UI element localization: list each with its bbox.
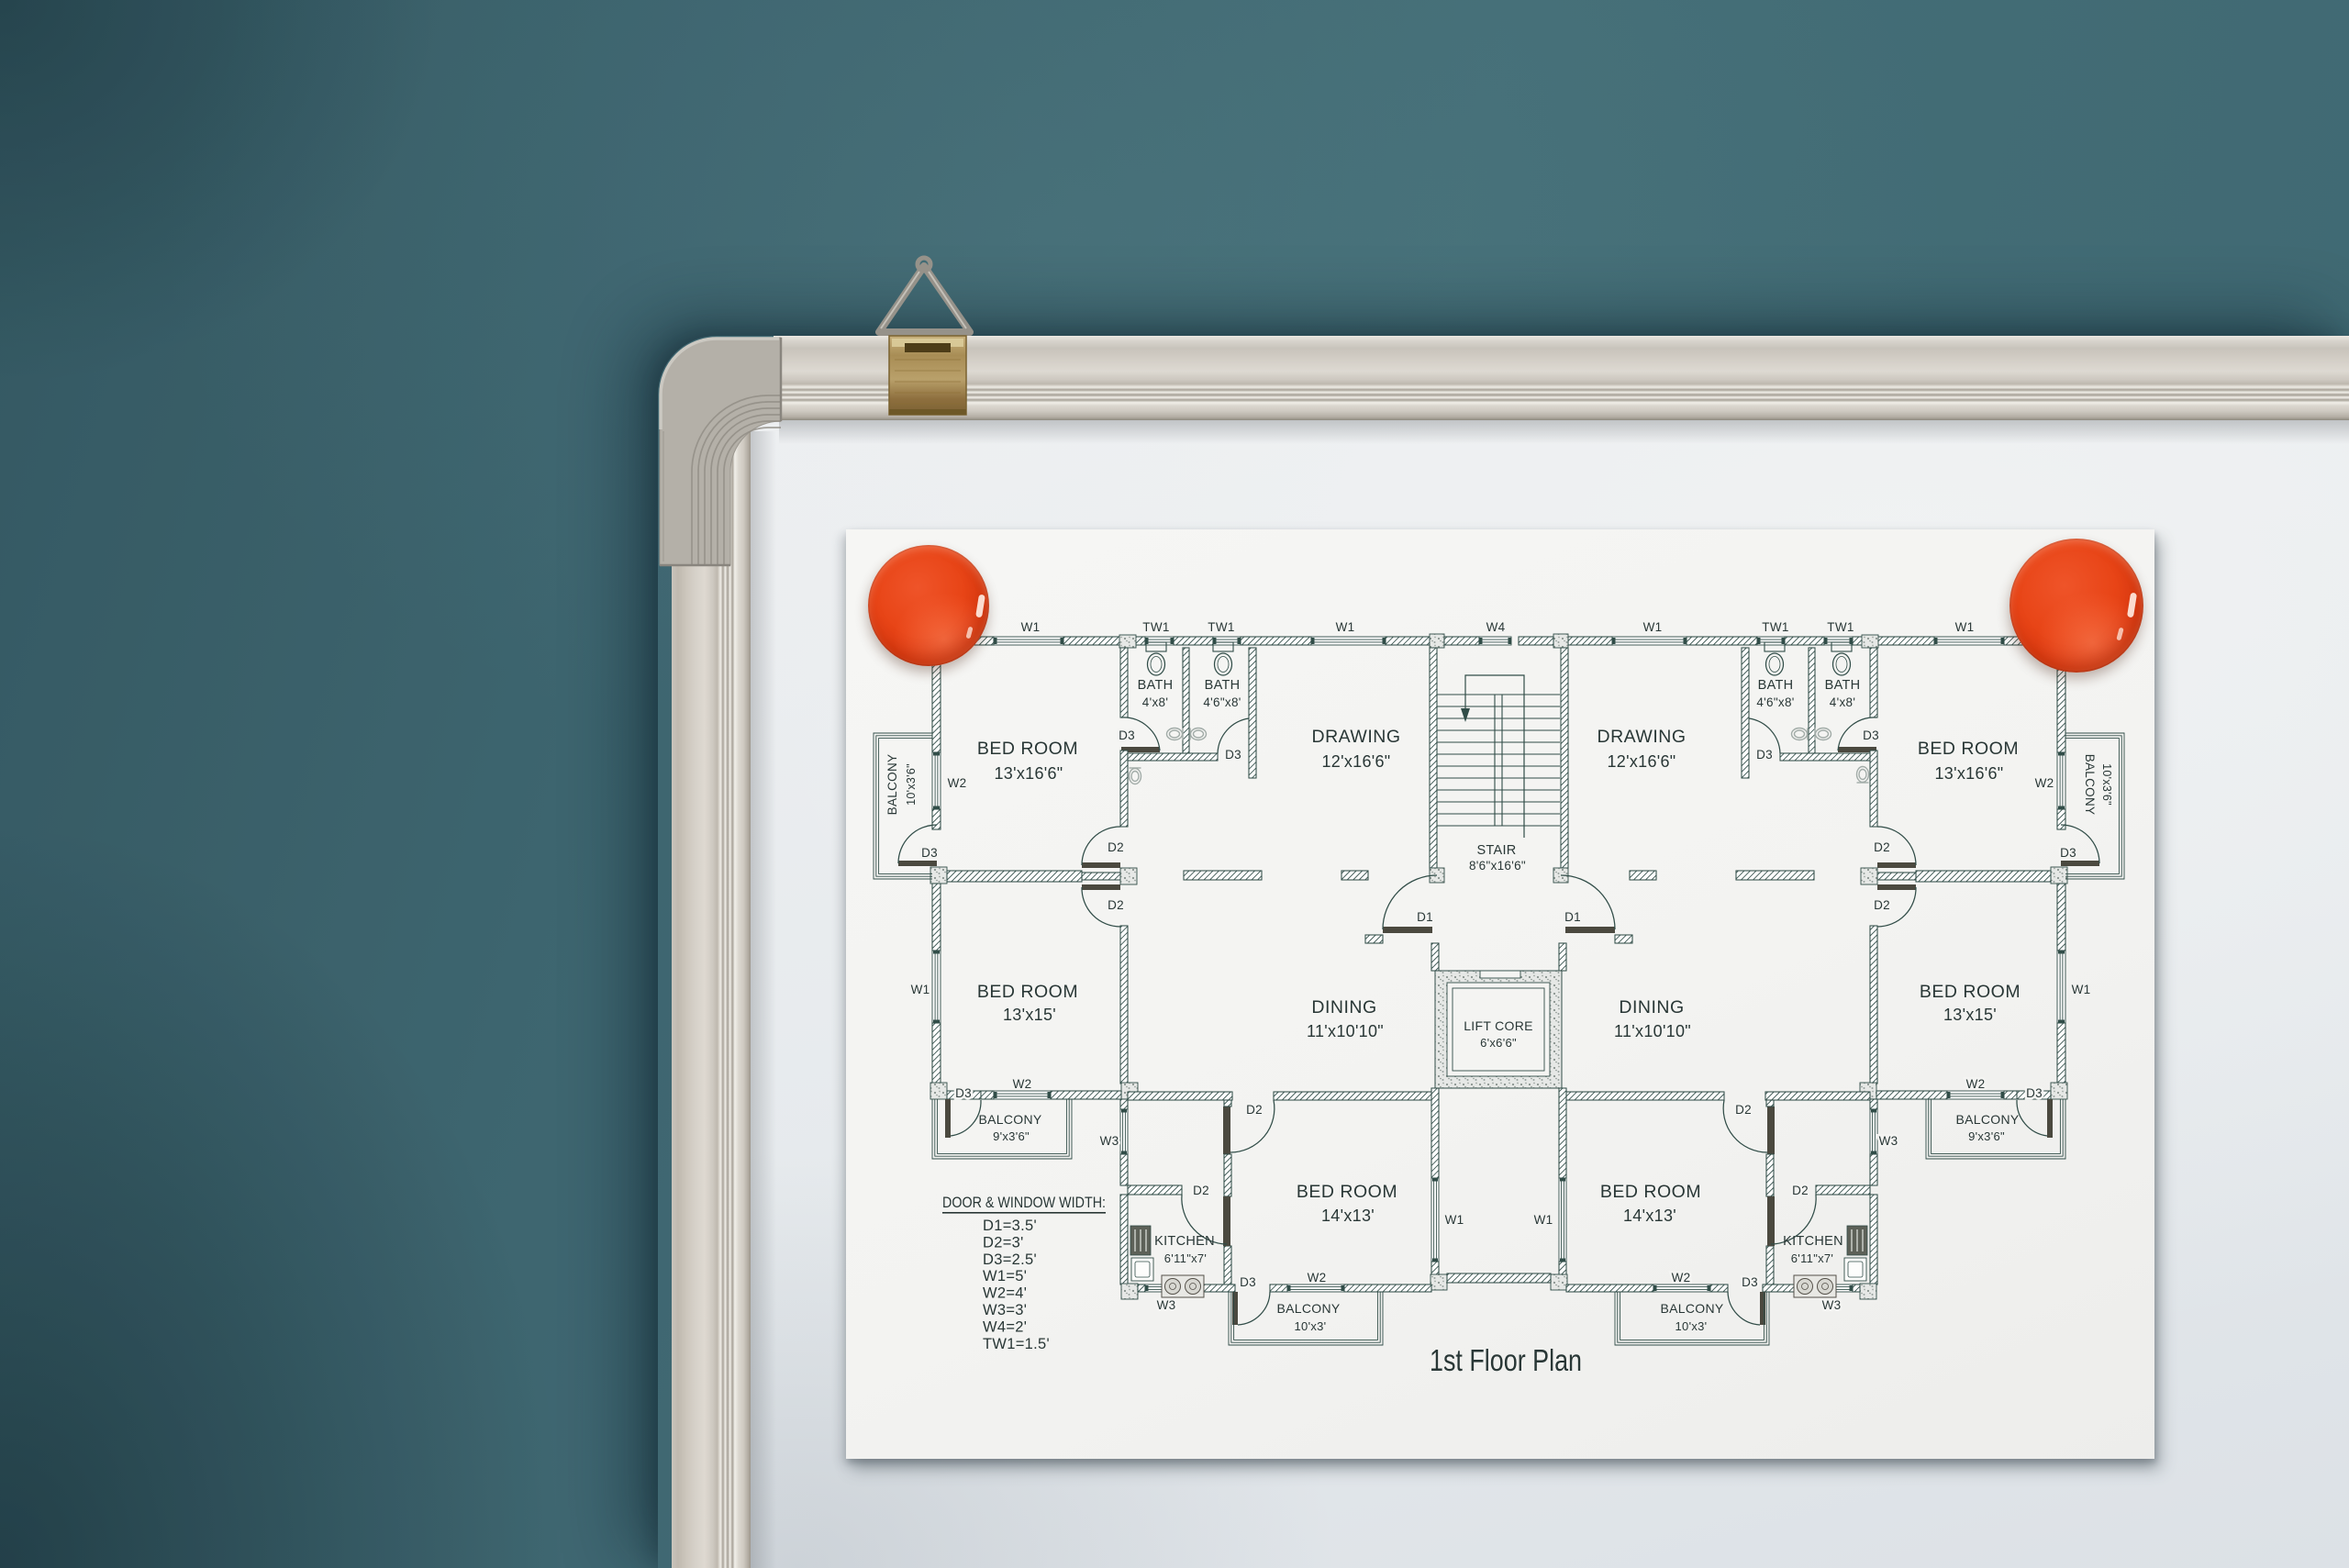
svg-text:11'x10'10": 11'x10'10": [1614, 1022, 1691, 1040]
svg-text:BALCONY: BALCONY: [1660, 1301, 1723, 1316]
svg-text:11'x10'10": 11'x10'10": [1307, 1022, 1384, 1040]
svg-text:W1: W1: [1445, 1213, 1464, 1227]
svg-text:D2: D2: [1792, 1184, 1809, 1197]
svg-text:W1=5': W1=5': [983, 1268, 1027, 1284]
svg-text:BALCONY: BALCONY: [1276, 1301, 1340, 1316]
svg-text:14'x13': 14'x13': [1321, 1207, 1375, 1225]
svg-text:W2=4': W2=4': [983, 1285, 1027, 1302]
svg-text:TW1=1.5': TW1=1.5': [983, 1336, 1050, 1352]
svg-text:DINING: DINING: [1619, 997, 1684, 1018]
svg-text:W2: W2: [1013, 1077, 1032, 1091]
svg-text:W1: W1: [1955, 620, 1975, 634]
svg-text:BATH: BATH: [1205, 678, 1241, 693]
svg-text:D2=3': D2=3': [983, 1234, 1024, 1251]
svg-text:D3: D3: [2060, 846, 2076, 860]
svg-text:8'6"x16'6": 8'6"x16'6": [1469, 859, 1526, 873]
svg-text:12'x16'6": 12'x16'6": [1321, 752, 1390, 771]
svg-text:W2: W2: [2035, 776, 2054, 790]
svg-text:D3: D3: [921, 846, 938, 860]
svg-text:STAIR: STAIR: [1476, 843, 1516, 858]
svg-text:W1: W1: [911, 983, 930, 996]
svg-text:W3: W3: [1157, 1298, 1176, 1312]
svg-text:DINING: DINING: [1311, 997, 1376, 1018]
svg-text:TW1: TW1: [1762, 620, 1788, 634]
svg-text:D3=2.5': D3=2.5': [983, 1251, 1037, 1268]
svg-text:W1: W1: [2072, 983, 2091, 996]
svg-text:W3: W3: [1100, 1134, 1119, 1148]
svg-text:BED ROOM: BED ROOM: [1918, 739, 2019, 759]
svg-text:DOOR & WINDOW WIDTH:: DOOR & WINDOW WIDTH:: [942, 1195, 1106, 1211]
svg-text:W1: W1: [1534, 1213, 1553, 1227]
svg-text:D2: D2: [1193, 1184, 1209, 1197]
svg-text:D3: D3: [1225, 748, 1241, 762]
svg-text:D2: D2: [1874, 898, 1890, 912]
svg-text:6'11"x7': 6'11"x7': [1791, 1251, 1833, 1265]
svg-text:DRAWING: DRAWING: [1311, 727, 1400, 747]
svg-text:W3: W3: [1879, 1134, 1898, 1148]
svg-text:W1: W1: [1643, 620, 1663, 634]
svg-text:4'6"x8': 4'6"x8': [1756, 695, 1794, 709]
svg-text:12'x16'6": 12'x16'6": [1607, 752, 1675, 771]
svg-text:13'x16'6": 13'x16'6": [1934, 764, 2003, 783]
svg-text:W2: W2: [1966, 1077, 1986, 1091]
svg-text:6'11"x7': 6'11"x7': [1164, 1251, 1207, 1265]
svg-text:W4: W4: [1486, 620, 1506, 634]
svg-text:BALCONY: BALCONY: [885, 754, 899, 816]
svg-text:TW1: TW1: [1208, 620, 1234, 634]
svg-text:D3: D3: [1240, 1275, 1256, 1289]
svg-text:10'x3': 10'x3': [1295, 1319, 1327, 1333]
svg-text:W2: W2: [948, 776, 967, 790]
svg-text:BALCONY: BALCONY: [1955, 1112, 2019, 1127]
svg-text:D1: D1: [1417, 910, 1433, 924]
svg-text:KITCHEN: KITCHEN: [1154, 1234, 1215, 1249]
svg-text:D3: D3: [955, 1086, 972, 1100]
svg-text:14'x13': 14'x13': [1623, 1207, 1676, 1225]
svg-text:13'x15': 13'x15': [1943, 1006, 1997, 1024]
svg-text:D2: D2: [1735, 1103, 1752, 1117]
svg-text:W2: W2: [1672, 1271, 1691, 1284]
svg-text:BED ROOM: BED ROOM: [977, 982, 1078, 1002]
svg-text:BALCONY: BALCONY: [2083, 754, 2097, 816]
svg-text:DRAWING: DRAWING: [1597, 727, 1686, 747]
svg-text:W1: W1: [1336, 620, 1355, 634]
svg-text:10'x3'6": 10'x3'6": [2100, 763, 2113, 806]
svg-text:W1: W1: [1021, 620, 1041, 634]
svg-text:D2: D2: [1874, 840, 1890, 854]
svg-text:TW1: TW1: [1142, 620, 1169, 634]
svg-text:D1=3.5': D1=3.5': [983, 1218, 1037, 1234]
svg-text:BATH: BATH: [1825, 678, 1861, 693]
svg-text:BATH: BATH: [1138, 678, 1174, 693]
svg-text:W3: W3: [1822, 1298, 1842, 1312]
svg-text:4'x8': 4'x8': [1142, 695, 1168, 709]
svg-text:BED ROOM: BED ROOM: [1600, 1182, 1701, 1202]
svg-text:D3: D3: [2026, 1086, 2043, 1100]
svg-text:10'x3': 10'x3': [1675, 1319, 1708, 1333]
svg-text:1st Floor Plan: 1st Floor Plan: [1430, 1344, 1582, 1378]
svg-text:BALCONY: BALCONY: [978, 1112, 1041, 1127]
svg-text:BED ROOM: BED ROOM: [1920, 982, 2021, 1002]
svg-text:D2: D2: [1108, 898, 1124, 912]
svg-text:4'x8': 4'x8': [1830, 695, 1855, 709]
svg-text:13'x16'6": 13'x16'6": [994, 764, 1063, 783]
svg-text:W3=3': W3=3': [983, 1302, 1027, 1318]
svg-text:W4=2': W4=2': [983, 1318, 1027, 1335]
svg-text:W2: W2: [1308, 1271, 1327, 1284]
svg-text:D1: D1: [1564, 910, 1581, 924]
svg-text:D3: D3: [1863, 728, 1879, 742]
svg-text:13'x15': 13'x15': [1003, 1006, 1056, 1024]
svg-text:BED ROOM: BED ROOM: [1297, 1182, 1397, 1202]
svg-text:KITCHEN: KITCHEN: [1783, 1234, 1843, 1249]
svg-text:LIFT CORE: LIFT CORE: [1464, 1018, 1533, 1033]
svg-text:TW1: TW1: [1827, 620, 1854, 634]
svg-text:4'6"x8': 4'6"x8': [1203, 695, 1241, 709]
svg-text:D3: D3: [1756, 748, 1773, 762]
svg-text:9'x3'6": 9'x3'6": [993, 1129, 1030, 1143]
svg-text:6'x6'6": 6'x6'6": [1480, 1036, 1517, 1050]
svg-text:D2: D2: [1108, 840, 1124, 854]
svg-text:BED ROOM: BED ROOM: [977, 739, 1078, 759]
svg-text:D3: D3: [1742, 1275, 1758, 1289]
svg-text:D2: D2: [1246, 1103, 1263, 1117]
svg-text:9'x3'6": 9'x3'6": [1968, 1129, 2005, 1143]
svg-text:10'x3'6": 10'x3'6": [905, 763, 918, 806]
svg-text:D3: D3: [1119, 728, 1135, 742]
svg-text:BATH: BATH: [1758, 678, 1794, 693]
